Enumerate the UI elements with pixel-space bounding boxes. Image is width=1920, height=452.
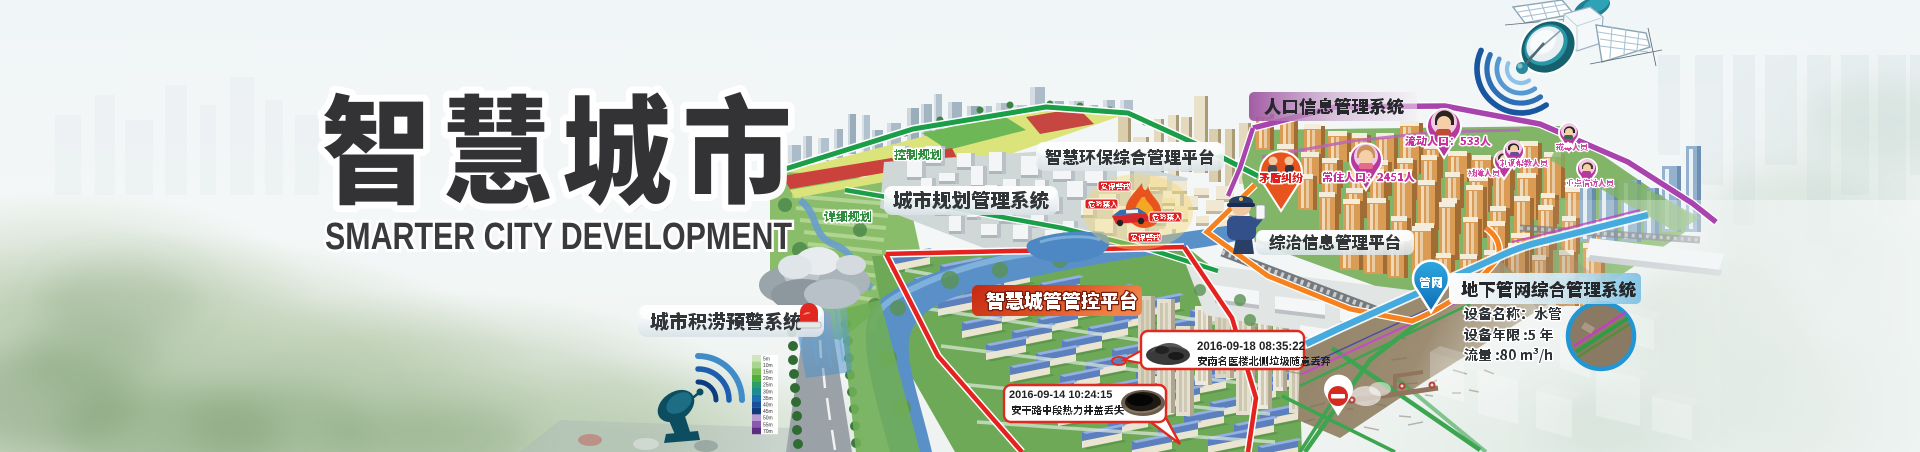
- svg-text:35m: 35m: [763, 396, 773, 402]
- svg-text:50m: 50m: [763, 416, 773, 422]
- svg-text:10m: 10m: [763, 363, 773, 369]
- svg-text:25m: 25m: [763, 383, 773, 389]
- svg-text:45m: 45m: [763, 409, 773, 415]
- svg-text:SMARTER CITY DEVELOPMENT: SMARTER CITY DEVELOPMENT: [325, 216, 792, 258]
- svg-text:2016-09-18 08:35:22: 2016-09-18 08:35:22: [1197, 341, 1305, 353]
- svg-text:20m: 20m: [763, 376, 773, 382]
- svg-text:5m: 5m: [763, 356, 770, 362]
- svg-text:2016-09-14 10:24:15: 2016-09-14 10:24:15: [1009, 389, 1112, 401]
- svg-text:55m: 55m: [763, 422, 773, 428]
- svg-text:70m: 70m: [763, 429, 773, 435]
- svg-text:40m: 40m: [763, 403, 773, 409]
- svg-text:30m: 30m: [763, 389, 773, 395]
- svg-text:15m: 15m: [763, 370, 773, 376]
